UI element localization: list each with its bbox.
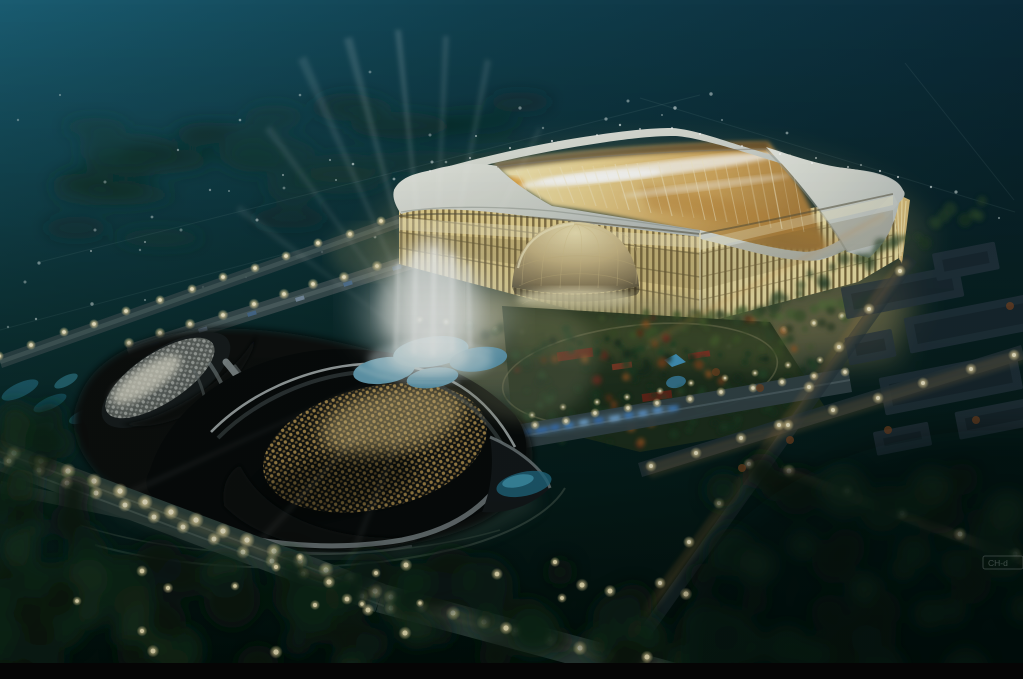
svg-text:CH-d: CH-d <box>988 558 1008 568</box>
